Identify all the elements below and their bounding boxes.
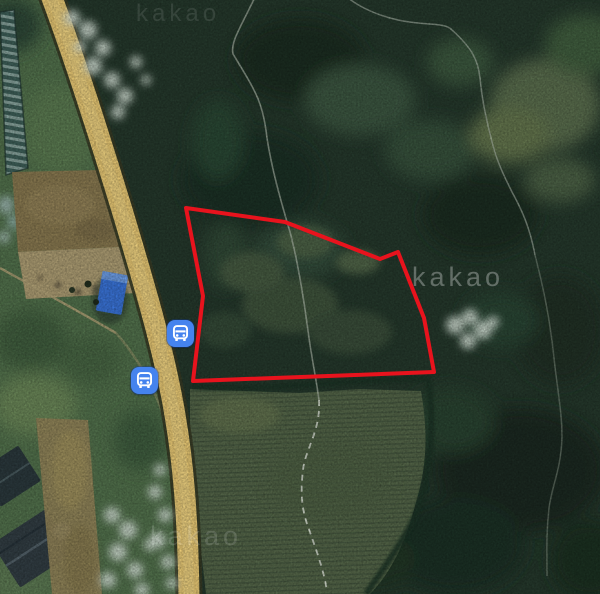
bus-stop-marker[interactable]	[131, 367, 158, 394]
image-grain	[0, 0, 600, 594]
satellite-map-canvas[interactable]: kakaokakaokakao	[0, 0, 600, 594]
bus-stop-marker[interactable]	[167, 320, 194, 347]
bus-icon	[134, 370, 155, 391]
bus-icon	[170, 323, 191, 344]
satellite-imagery	[0, 0, 600, 594]
